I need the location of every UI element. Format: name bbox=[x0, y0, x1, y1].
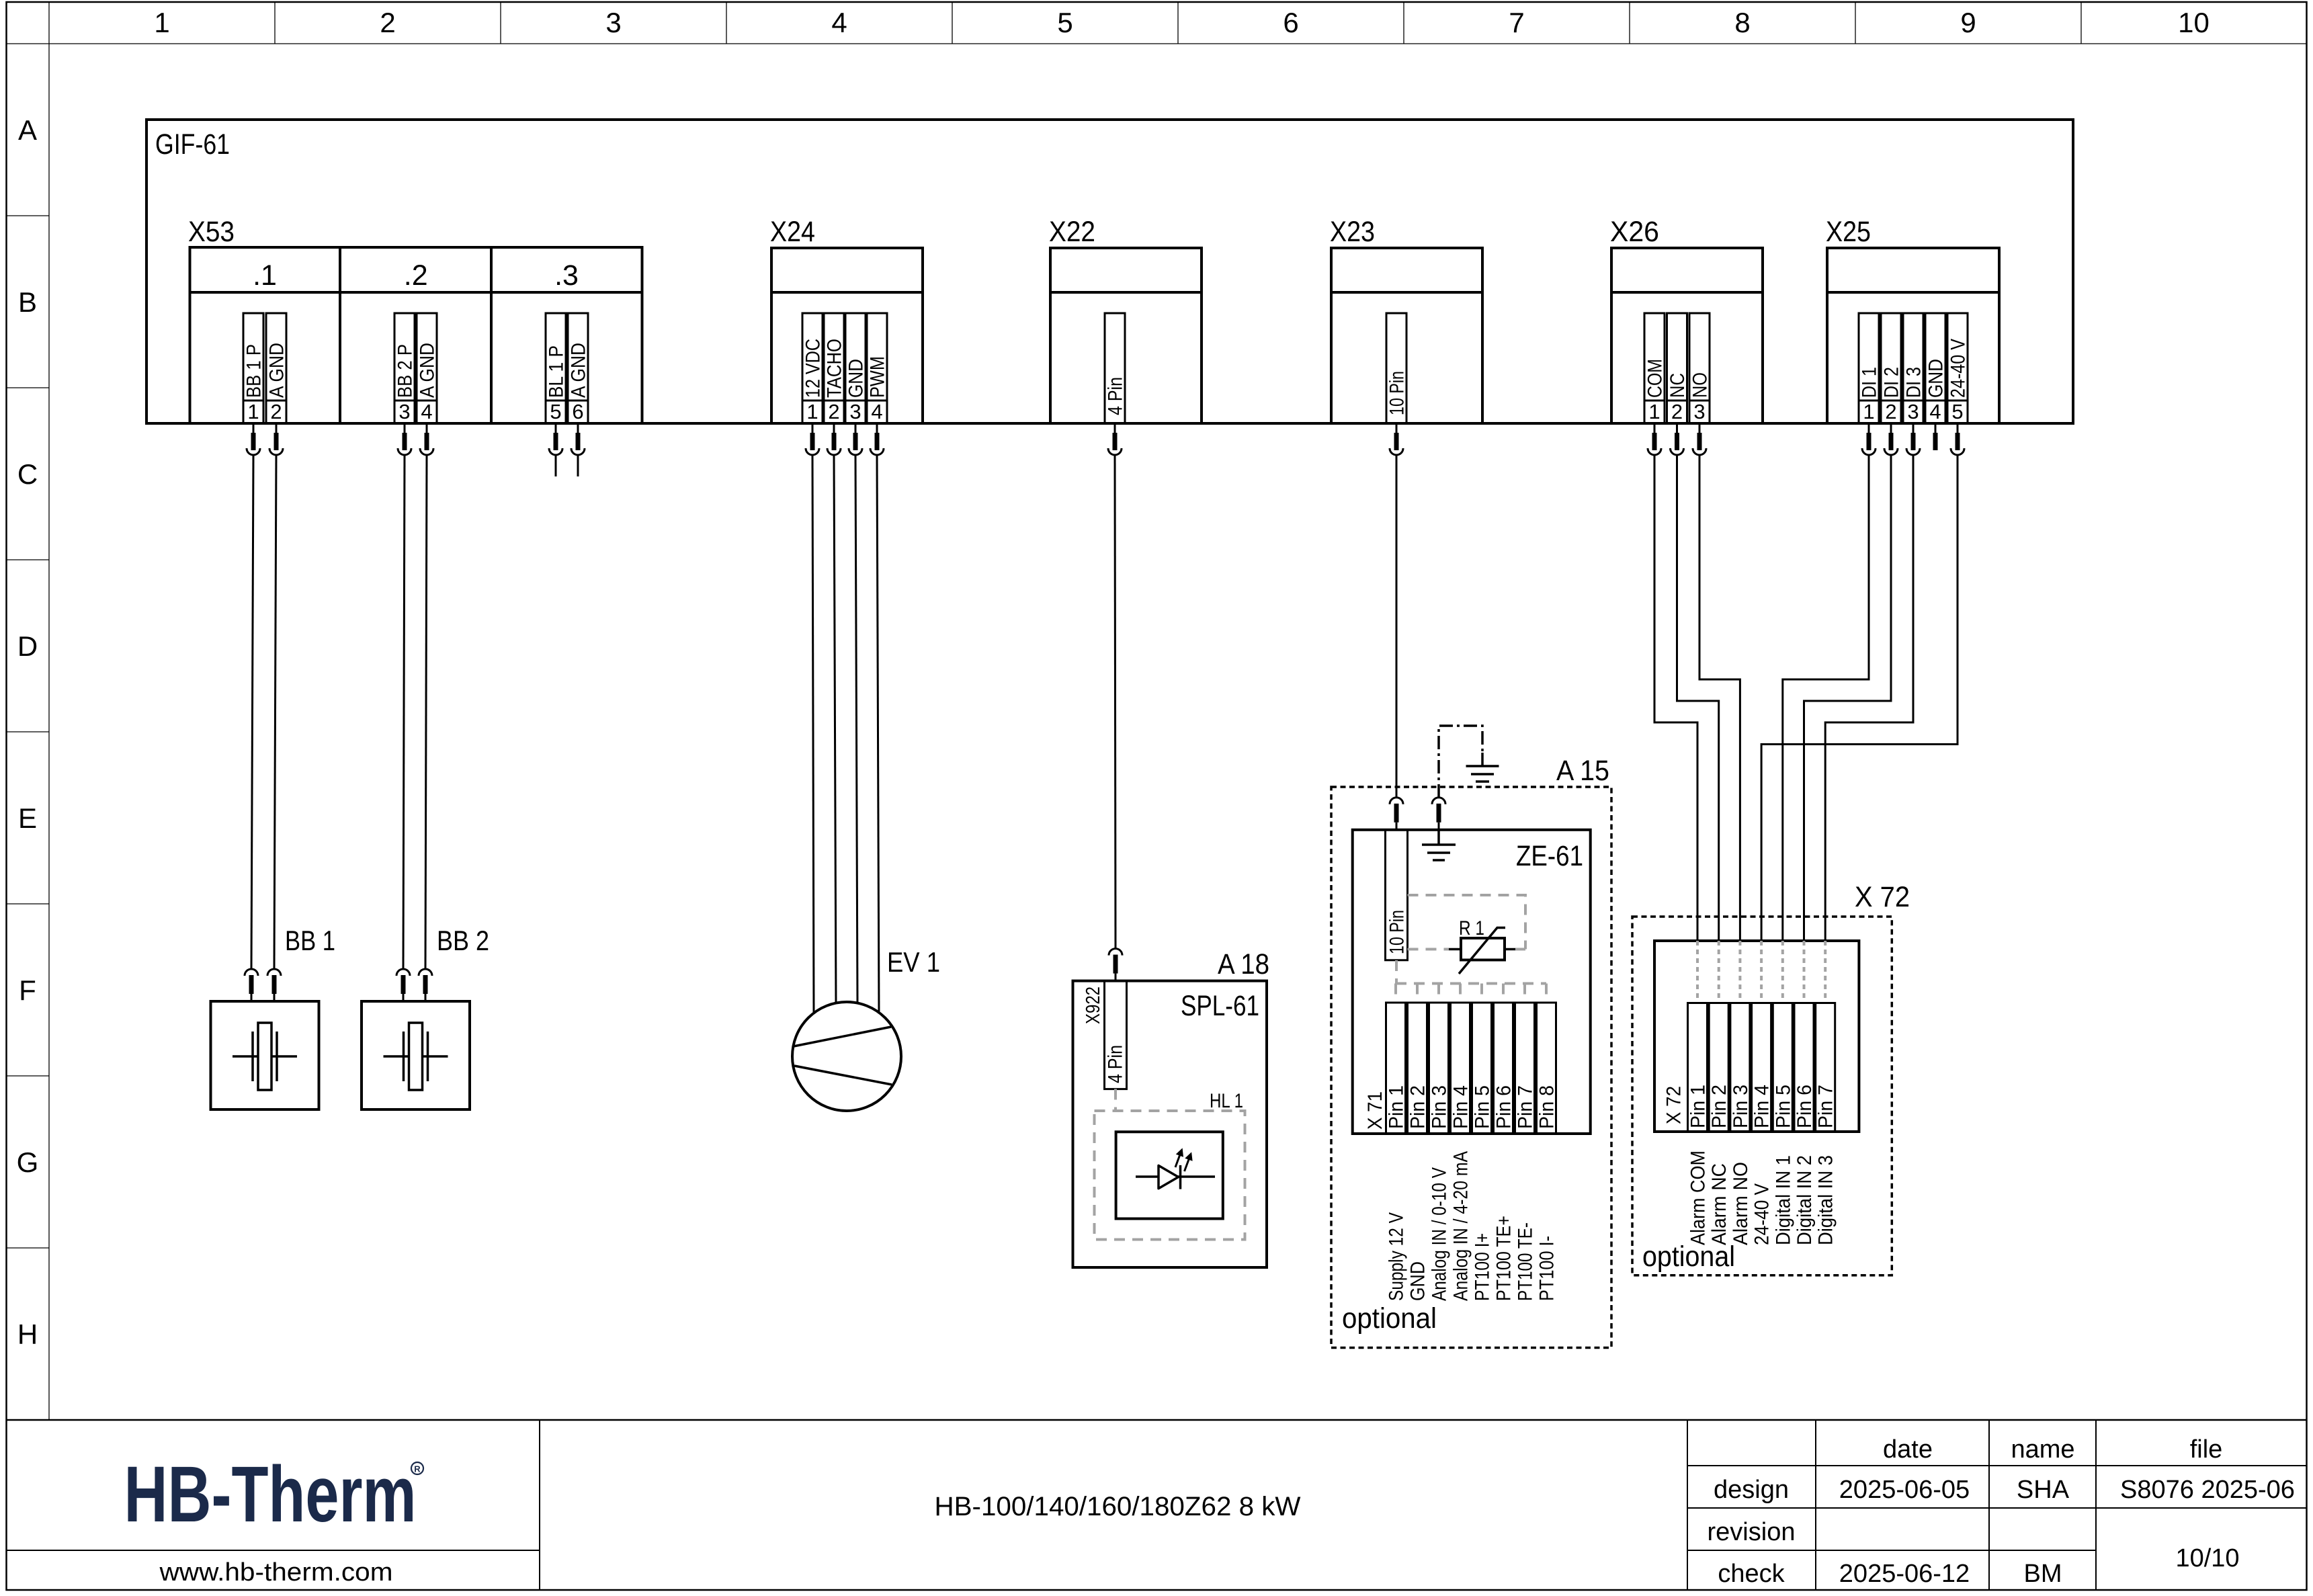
svg-text:A 15: A 15 bbox=[1556, 755, 1609, 787]
svg-text:Pin 3: Pin 3 bbox=[1429, 1085, 1451, 1129]
svg-text:1: 1 bbox=[1863, 400, 1874, 423]
svg-text:PT100 I-: PT100 I- bbox=[1536, 1236, 1558, 1301]
svg-text:Pin 2: Pin 2 bbox=[1708, 1085, 1730, 1128]
svg-text:Pin 1: Pin 1 bbox=[1687, 1085, 1710, 1128]
svg-text:Pin 4: Pin 4 bbox=[1751, 1085, 1773, 1128]
svg-text:2: 2 bbox=[270, 400, 282, 423]
svg-text:GND: GND bbox=[845, 359, 868, 398]
svg-text:PT100 TE-: PT100 TE- bbox=[1515, 1222, 1537, 1301]
svg-text:5: 5 bbox=[550, 400, 561, 423]
svg-text:D: D bbox=[17, 630, 38, 662]
svg-text:1: 1 bbox=[154, 7, 169, 38]
svg-text:4 Pin: 4 Pin bbox=[1105, 377, 1127, 415]
svg-text:www.hb-therm.com: www.hb-therm.com bbox=[159, 1558, 392, 1587]
svg-text:2: 2 bbox=[1671, 400, 1683, 423]
svg-text:1: 1 bbox=[247, 400, 259, 423]
svg-text:NC: NC bbox=[1667, 373, 1689, 398]
svg-text:X53: X53 bbox=[188, 216, 235, 248]
svg-text:H: H bbox=[17, 1318, 38, 1350]
svg-text:check: check bbox=[1718, 1560, 1785, 1588]
svg-text:Pin 6: Pin 6 bbox=[1794, 1085, 1816, 1128]
svg-text:4 Pin: 4 Pin bbox=[1105, 1045, 1127, 1083]
svg-text:Supply 12 V: Supply 12 V bbox=[1386, 1212, 1408, 1301]
svg-text:24-40 V: 24-40 V bbox=[1751, 1183, 1773, 1245]
svg-text:4: 4 bbox=[1929, 400, 1941, 423]
svg-text:Digital IN 1: Digital IN 1 bbox=[1772, 1155, 1794, 1245]
svg-text:A 18: A 18 bbox=[1218, 948, 1269, 980]
svg-text:Alarm NO: Alarm NO bbox=[1730, 1162, 1752, 1245]
svg-text:R 1: R 1 bbox=[1459, 917, 1484, 939]
svg-text:HB-Therm: HB-Therm bbox=[124, 1450, 417, 1539]
svg-text:R: R bbox=[414, 1464, 421, 1474]
svg-text:HB-100/140/160/180Z62 8 kW: HB-100/140/160/180Z62 8 kW bbox=[935, 1492, 1301, 1521]
svg-text:6: 6 bbox=[1283, 7, 1298, 38]
svg-text:X 72: X 72 bbox=[1663, 1086, 1685, 1124]
svg-text:6: 6 bbox=[572, 400, 583, 423]
svg-text:9: 9 bbox=[1960, 7, 1976, 38]
svg-text:A GND: A GND bbox=[266, 343, 288, 398]
svg-text:A: A bbox=[18, 114, 37, 146]
svg-text:C: C bbox=[17, 458, 38, 490]
svg-text:3: 3 bbox=[398, 400, 410, 423]
svg-text:SPL-61: SPL-61 bbox=[1181, 990, 1259, 1022]
svg-text:G: G bbox=[17, 1146, 39, 1178]
svg-text:4: 4 bbox=[421, 400, 432, 423]
svg-text:optional: optional bbox=[1642, 1241, 1735, 1273]
svg-text:PT100 I+: PT100 I+ bbox=[1472, 1233, 1494, 1301]
svg-text:Pin 5: Pin 5 bbox=[1472, 1085, 1494, 1129]
svg-text:DI 1: DI 1 bbox=[1859, 367, 1881, 398]
svg-text:BB 1: BB 1 bbox=[285, 925, 335, 956]
svg-text:2025-06-05: 2025-06-05 bbox=[1839, 1476, 1970, 1504]
svg-text:SHA: SHA bbox=[2017, 1476, 2070, 1504]
svg-text:A GND: A GND bbox=[568, 343, 590, 398]
svg-text:X922: X922 bbox=[1083, 986, 1104, 1024]
svg-text:F: F bbox=[19, 974, 36, 1006]
svg-text:Alarm NC: Alarm NC bbox=[1708, 1163, 1730, 1245]
svg-text:PT100 TE+: PT100 TE+ bbox=[1493, 1216, 1515, 1301]
svg-text:design: design bbox=[1714, 1476, 1789, 1504]
svg-text:X24: X24 bbox=[770, 216, 815, 248]
svg-text:3: 3 bbox=[605, 7, 621, 38]
svg-text:10 Pin: 10 Pin bbox=[1386, 371, 1408, 415]
svg-text:.2: .2 bbox=[404, 259, 428, 292]
svg-text:5: 5 bbox=[1057, 7, 1073, 38]
svg-text:Alarm COM: Alarm COM bbox=[1687, 1150, 1710, 1245]
svg-text:Pin 3: Pin 3 bbox=[1730, 1085, 1752, 1128]
svg-text:3: 3 bbox=[1693, 400, 1705, 423]
svg-text:HL 1: HL 1 bbox=[1210, 1090, 1243, 1112]
svg-text:10/10: 10/10 bbox=[2175, 1544, 2239, 1572]
svg-text:Pin 7: Pin 7 bbox=[1515, 1085, 1537, 1129]
svg-text:NO: NO bbox=[1689, 372, 1712, 398]
svg-text:Digital IN 2: Digital IN 2 bbox=[1794, 1155, 1816, 1245]
svg-text:24-40 V: 24-40 V bbox=[1947, 339, 1970, 398]
svg-text:Pin 2: Pin 2 bbox=[1407, 1085, 1429, 1129]
svg-text:X 72: X 72 bbox=[1855, 881, 1910, 913]
svg-text:COM: COM bbox=[1644, 359, 1667, 398]
svg-text:Pin 4: Pin 4 bbox=[1450, 1085, 1472, 1129]
svg-text:3: 3 bbox=[849, 400, 861, 423]
svg-text:revision: revision bbox=[1708, 1518, 1796, 1546]
svg-text:E: E bbox=[18, 802, 37, 834]
svg-text:Pin 8: Pin 8 bbox=[1536, 1085, 1558, 1129]
svg-text:GIF-61: GIF-61 bbox=[155, 128, 230, 161]
svg-text:EV 1: EV 1 bbox=[887, 946, 940, 978]
svg-text:DI 2: DI 2 bbox=[1881, 367, 1903, 398]
svg-text:TACHO: TACHO bbox=[824, 339, 846, 398]
svg-text:2: 2 bbox=[828, 400, 839, 423]
svg-text:Analog IN / 4-20 mA: Analog IN / 4-20 mA bbox=[1450, 1151, 1472, 1301]
svg-text:BM: BM bbox=[2024, 1560, 2062, 1588]
svg-text:BB 1 P: BB 1 P bbox=[243, 344, 265, 398]
svg-text:Pin 6: Pin 6 bbox=[1493, 1085, 1515, 1129]
svg-text:Pin 1: Pin 1 bbox=[1386, 1085, 1408, 1129]
svg-text:BB 2 P: BB 2 P bbox=[394, 344, 417, 398]
svg-text:1: 1 bbox=[1648, 400, 1660, 423]
svg-text:B: B bbox=[18, 286, 37, 318]
svg-text:X23: X23 bbox=[1330, 216, 1375, 248]
svg-text:4: 4 bbox=[831, 7, 847, 38]
svg-text:BL 1 P: BL 1 P bbox=[546, 345, 568, 398]
svg-text:Pin 5: Pin 5 bbox=[1772, 1085, 1794, 1128]
svg-text:X25: X25 bbox=[1826, 216, 1871, 248]
svg-text:.3: .3 bbox=[554, 259, 579, 292]
svg-text:5: 5 bbox=[1951, 400, 1963, 423]
svg-text:3: 3 bbox=[1907, 400, 1919, 423]
svg-text:10: 10 bbox=[2178, 7, 2210, 38]
svg-text:1: 1 bbox=[806, 400, 818, 423]
svg-text:12 VDC: 12 VDC bbox=[802, 339, 825, 398]
svg-text:GND: GND bbox=[1407, 1261, 1429, 1301]
svg-text:Pin 7: Pin 7 bbox=[1815, 1085, 1837, 1128]
svg-text:BB 2: BB 2 bbox=[437, 925, 489, 956]
svg-text:file: file bbox=[2190, 1435, 2223, 1464]
svg-text:PWM: PWM bbox=[867, 356, 889, 398]
svg-text:X 71: X 71 bbox=[1364, 1091, 1386, 1130]
svg-text:2025-06-12: 2025-06-12 bbox=[1839, 1560, 1970, 1588]
svg-text:2: 2 bbox=[380, 7, 395, 38]
svg-text:optional: optional bbox=[1342, 1302, 1437, 1335]
svg-text:A GND: A GND bbox=[417, 343, 439, 398]
svg-text:ZE-61: ZE-61 bbox=[1516, 840, 1583, 872]
svg-text:8: 8 bbox=[1734, 7, 1750, 38]
svg-text:name: name bbox=[2011, 1435, 2074, 1464]
svg-text:.1: .1 bbox=[253, 259, 277, 292]
svg-text:4: 4 bbox=[871, 400, 882, 423]
svg-text:DI 3: DI 3 bbox=[1903, 367, 1925, 398]
svg-text:X26: X26 bbox=[1610, 216, 1659, 248]
svg-text:7: 7 bbox=[1509, 7, 1524, 38]
svg-text:date: date bbox=[1883, 1435, 1933, 1464]
svg-text:2: 2 bbox=[1885, 400, 1896, 423]
svg-text:X22: X22 bbox=[1049, 216, 1095, 248]
svg-text:GND: GND bbox=[1925, 359, 1947, 398]
svg-text:Analog IN / 0-10 V: Analog IN / 0-10 V bbox=[1429, 1167, 1451, 1301]
svg-text:10 Pin: 10 Pin bbox=[1386, 910, 1408, 954]
svg-text:S8076 2025-06: S8076 2025-06 bbox=[2120, 1476, 2295, 1504]
svg-text:Digital IN 3: Digital IN 3 bbox=[1815, 1155, 1837, 1245]
